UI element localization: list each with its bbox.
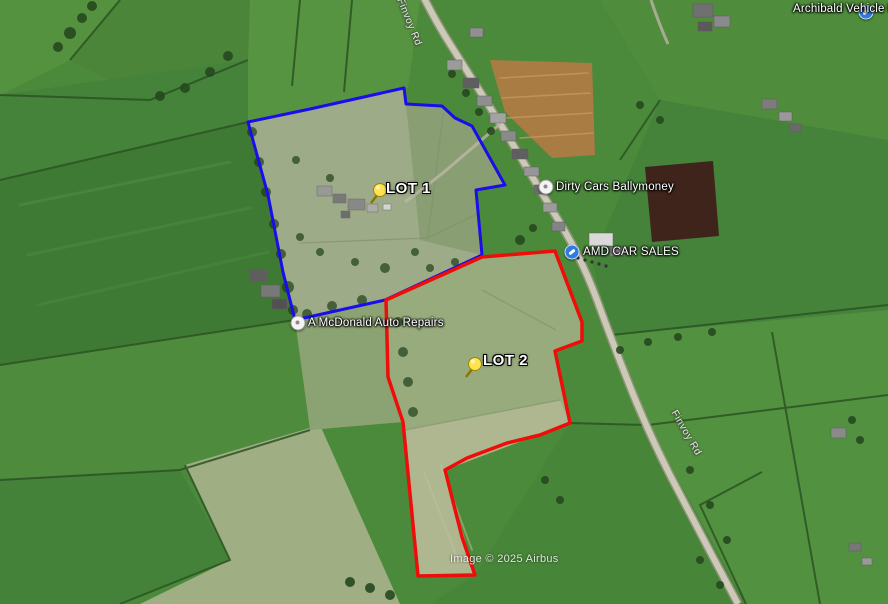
map-viewport[interactable]: Image © 2025 Airbus LOT 1LOT 2Archibald … (0, 0, 888, 604)
dirty-cars-marker-icon[interactable] (539, 180, 554, 195)
lot-2-boundary-polygon[interactable] (386, 251, 582, 576)
a-mcdonald-marker-icon[interactable] (291, 316, 306, 331)
amd-car-sales-marker-icon[interactable] (565, 245, 580, 260)
archibald-marker-icon[interactable] (859, 5, 874, 20)
lot-overlay (0, 0, 888, 604)
